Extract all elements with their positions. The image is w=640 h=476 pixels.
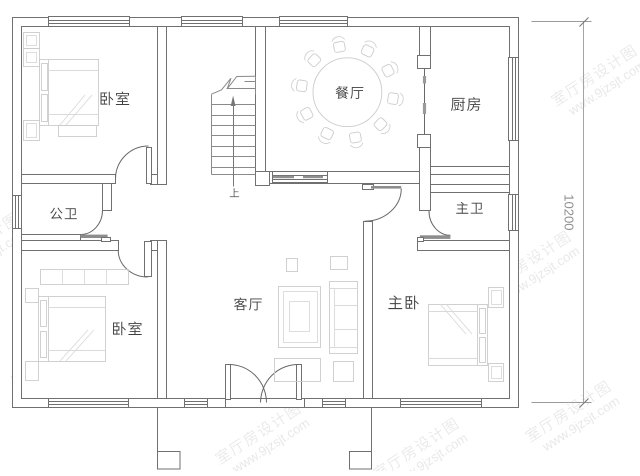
svg-text:10200: 10200 (561, 194, 576, 230)
